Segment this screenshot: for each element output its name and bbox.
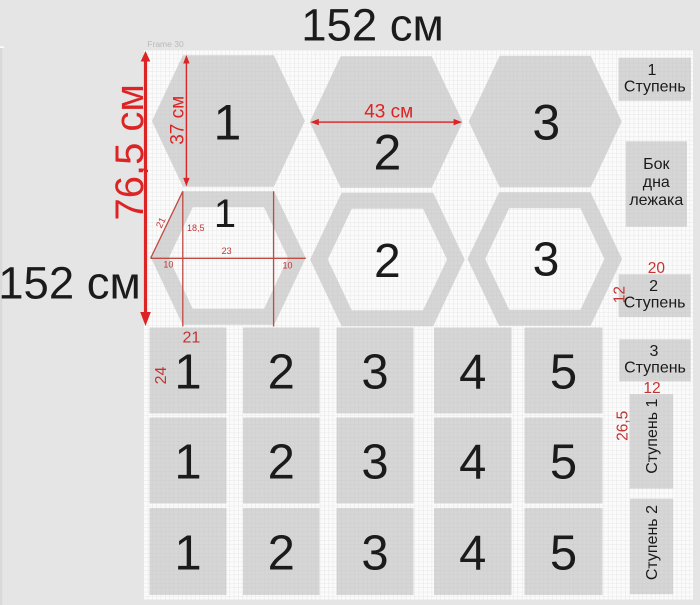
svg-text:1: 1 <box>174 435 201 489</box>
svg-text:5: 5 <box>550 526 577 580</box>
svg-text:20: 20 <box>648 260 666 277</box>
svg-text:2: 2 <box>649 278 658 295</box>
svg-text:3: 3 <box>533 233 560 286</box>
svg-text:3: 3 <box>532 95 560 151</box>
svg-text:23: 23 <box>222 246 232 256</box>
svg-text:Бок: Бок <box>643 156 670 173</box>
svg-text:4: 4 <box>459 435 486 489</box>
svg-text:3: 3 <box>361 345 388 399</box>
svg-text:Ступень: Ступень <box>624 360 686 377</box>
svg-text:18,5: 18,5 <box>187 223 205 233</box>
svg-text:5: 5 <box>550 345 577 399</box>
svg-text:Ступень: Ступень <box>624 295 686 312</box>
svg-text:2: 2 <box>268 435 295 489</box>
svg-text:4: 4 <box>459 345 486 399</box>
svg-text:3: 3 <box>650 343 659 360</box>
svg-text:2: 2 <box>268 526 295 580</box>
svg-text:Frame 30: Frame 30 <box>147 39 184 49</box>
svg-text:Ступень: Ступень <box>624 79 686 96</box>
svg-text:Ступень 2: Ступень 2 <box>644 505 661 580</box>
svg-text:10: 10 <box>282 261 292 271</box>
svg-text:26,5: 26,5 <box>614 411 631 441</box>
svg-text:37 см: 37 см <box>168 96 189 145</box>
svg-text:152 см: 152 см <box>301 0 444 51</box>
svg-text:12: 12 <box>643 380 660 397</box>
svg-text:1: 1 <box>174 526 201 580</box>
svg-text:3: 3 <box>361 526 388 580</box>
svg-text:2: 2 <box>374 235 401 288</box>
svg-text:152 см: 152 см <box>0 258 141 309</box>
svg-text:24: 24 <box>153 367 170 385</box>
svg-text:10: 10 <box>163 260 173 270</box>
svg-text:1: 1 <box>214 192 236 236</box>
svg-text:2: 2 <box>268 345 295 399</box>
svg-text:1: 1 <box>648 62 657 79</box>
svg-text:43 см: 43 см <box>364 102 413 123</box>
svg-text:76,5 см: 76,5 см <box>108 84 152 220</box>
svg-text:дна: дна <box>643 174 670 191</box>
svg-text:21: 21 <box>183 330 201 347</box>
svg-text:3: 3 <box>361 435 388 489</box>
svg-text:1: 1 <box>174 345 201 399</box>
svg-text:Ступень 1: Ступень 1 <box>644 399 661 474</box>
svg-text:лежака: лежака <box>629 192 683 209</box>
svg-text:5: 5 <box>550 435 577 489</box>
svg-text:2: 2 <box>373 125 401 181</box>
svg-text:4: 4 <box>459 526 486 580</box>
svg-text:1: 1 <box>213 95 241 151</box>
